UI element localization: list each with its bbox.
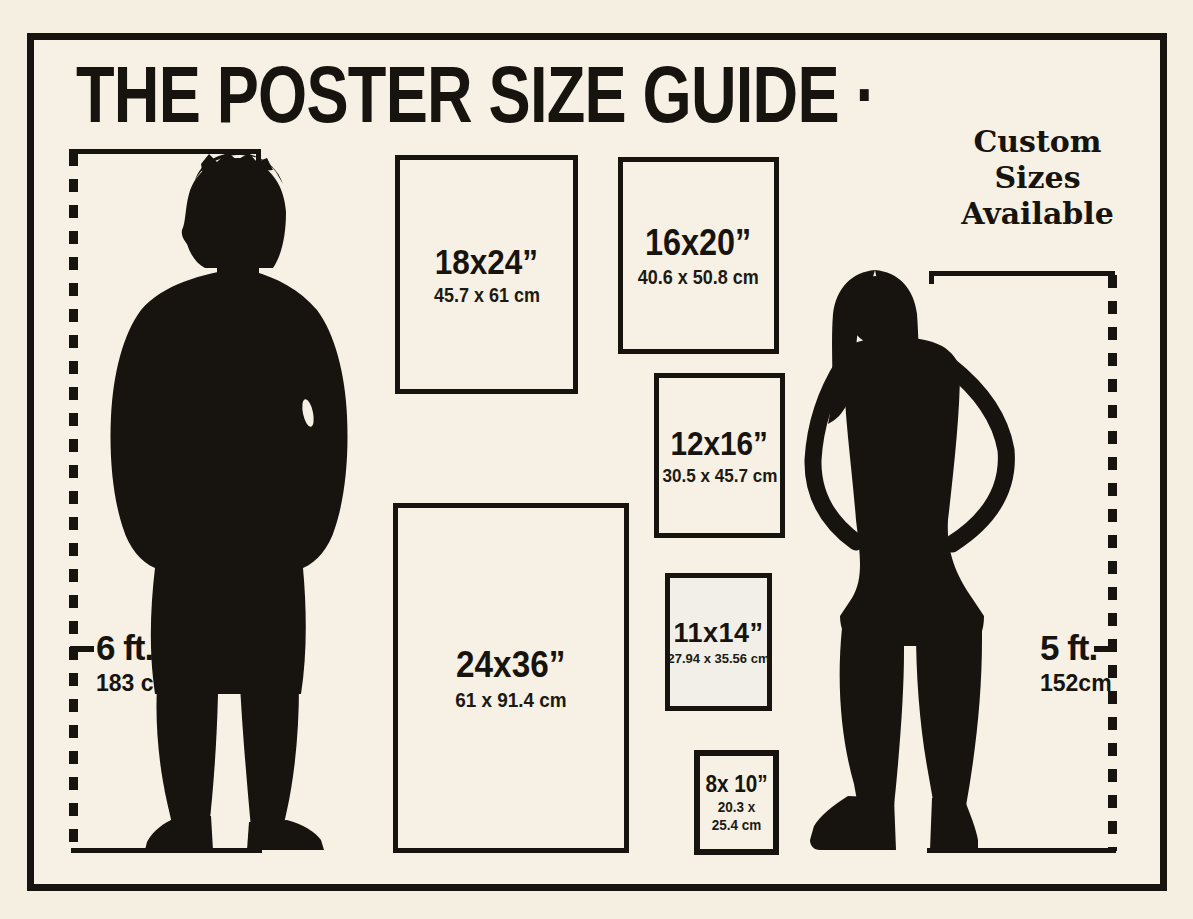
size-cm-24x36: 61 x 91.4 cm	[455, 688, 566, 712]
size-inches-12x16: 12x16”	[671, 425, 768, 463]
size-box-18x24: 18x24” 45.7 x 61 cm	[395, 155, 578, 394]
size-cm-8x10: 20.3 x 25.4 cm	[704, 798, 770, 834]
man-height-dashed-line	[69, 153, 78, 851]
woman-height-label: 5 ft. 152cm	[1040, 630, 1095, 697]
custom-sizes-note: Custom Sizes Available	[945, 124, 1130, 232]
woman-height-dashed-line	[1108, 275, 1117, 851]
size-box-24x36: 24x36” 61 x 91.4 cm	[393, 503, 629, 853]
size-box-11x14: 11x14” 27.94 x 35.56 cm	[665, 573, 772, 711]
page-title: THE POSTER SIZE GUIDE ·	[76, 56, 876, 134]
size-inches-18x24: 18x24”	[435, 242, 538, 282]
poster-size-guide: THE POSTER SIZE GUIDE · Custom Sizes Ava…	[0, 0, 1193, 919]
woman-silhouette	[800, 268, 1025, 852]
size-cm-18x24: 45.7 x 61 cm	[433, 284, 539, 307]
size-inches-11x14: 11x14”	[673, 618, 763, 649]
size-box-16x20: 16x20” 40.6 x 50.8 cm	[618, 157, 779, 354]
custom-note-line1: Custom	[945, 124, 1130, 160]
woman-height-tick	[1094, 646, 1114, 652]
size-box-8x10: 8x 10” 20.3 x 25.4 cm	[694, 750, 779, 855]
man-silhouette	[83, 150, 373, 853]
woman-height-cm: 152cm	[1040, 669, 1095, 697]
woman-height-feet: 5 ft.	[1040, 630, 1095, 666]
size-cm-12x16: 30.5 x 45.7 cm	[662, 465, 777, 487]
size-inches-16x20: 16x20”	[645, 222, 751, 264]
custom-note-line2: Sizes	[945, 160, 1130, 196]
size-box-12x16: 12x16” 30.5 x 45.7 cm	[654, 373, 785, 538]
size-inches-24x36: 24x36”	[456, 644, 565, 686]
size-cm-16x20: 40.6 x 50.8 cm	[638, 266, 759, 289]
custom-note-line3: Available	[945, 196, 1130, 232]
size-inches-8x10: 8x 10”	[705, 771, 767, 797]
size-cm-11x14: 27.94 x 35.56 cm	[668, 651, 770, 666]
